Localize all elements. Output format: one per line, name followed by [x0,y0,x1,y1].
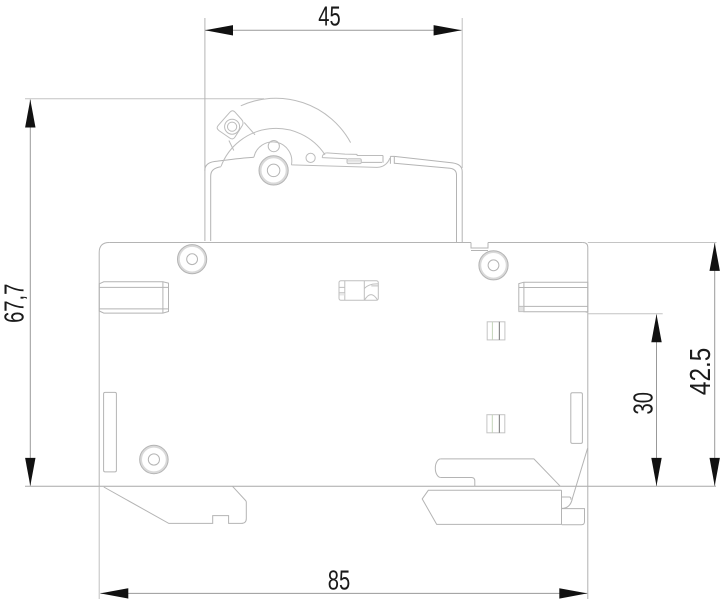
svg-text:42.5: 42.5 [684,348,716,395]
svg-text:85: 85 [328,565,350,596]
svg-text:45: 45 [318,1,340,32]
svg-text:30: 30 [628,392,659,414]
svg-text:67,7: 67,7 [0,284,30,323]
